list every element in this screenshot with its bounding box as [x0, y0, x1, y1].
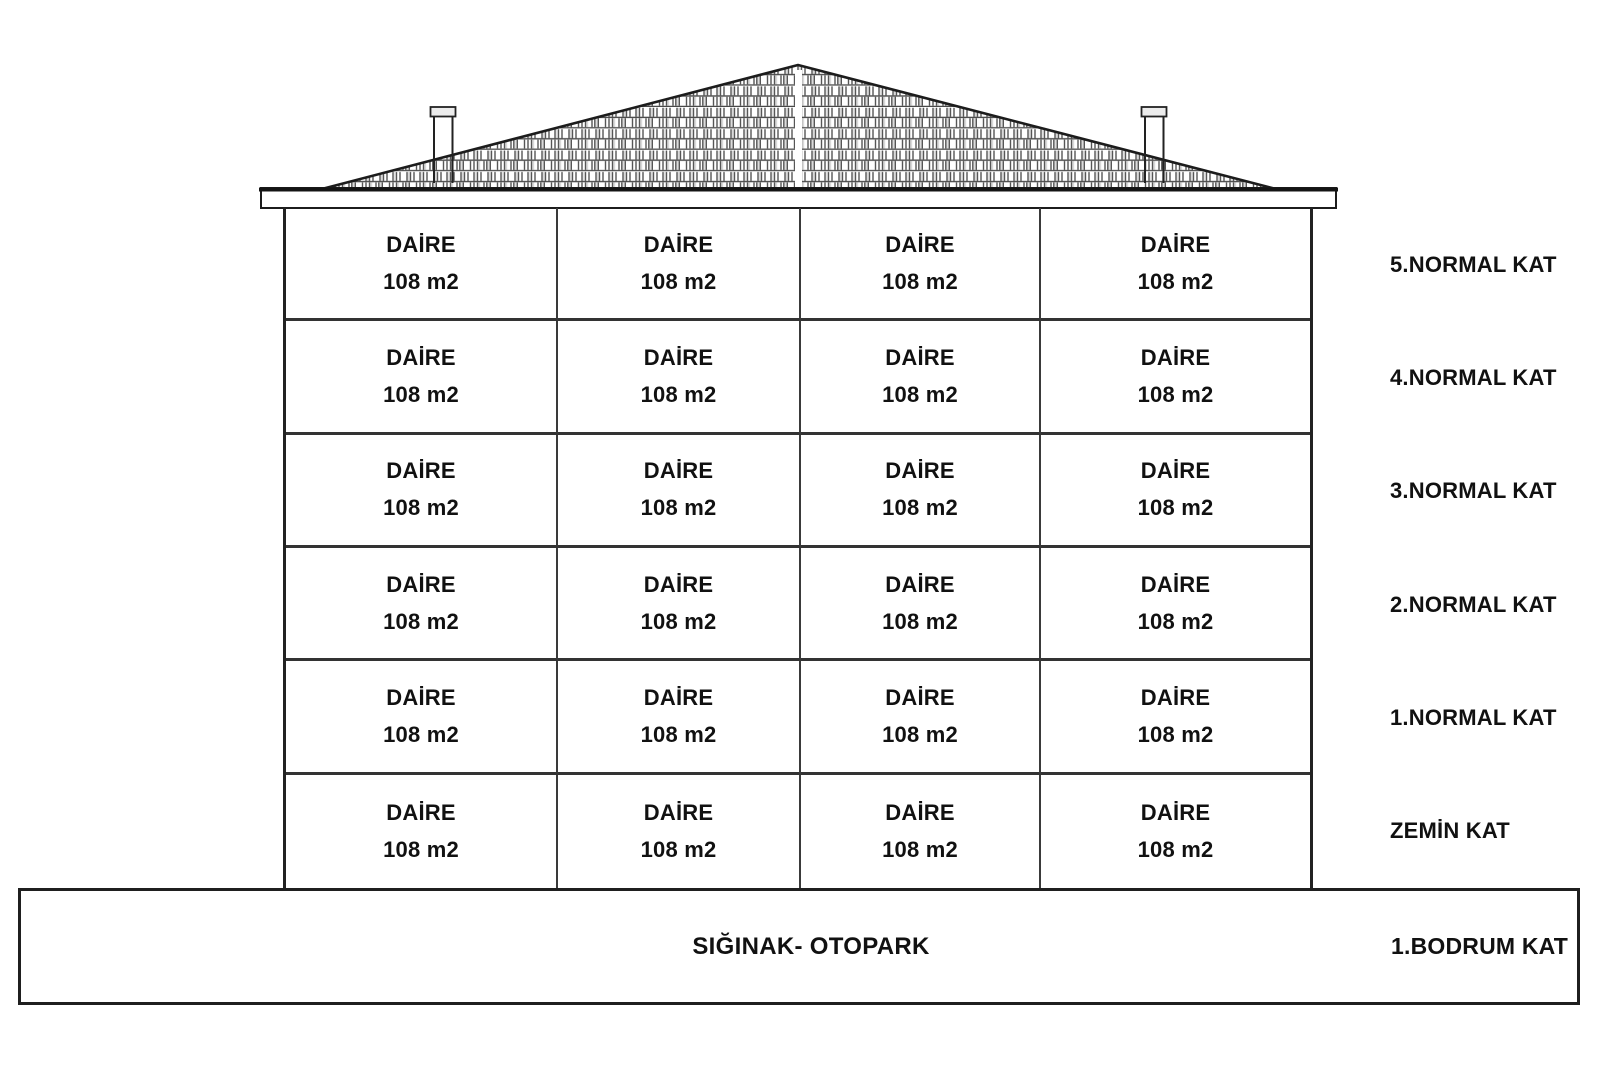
floor-label: 3.NORMAL KAT: [1390, 435, 1557, 548]
apartment-cell: DAİRE108 m2: [1041, 775, 1310, 888]
unit-area: 108 m2: [1138, 724, 1214, 746]
apartment-cell: DAİRE108 m2: [801, 208, 1041, 321]
apartment-cell: DAİRE108 m2: [1041, 208, 1310, 321]
eave-band: [259, 188, 1338, 208]
unit-name: DAİRE: [1141, 687, 1210, 709]
unit-area: 108 m2: [641, 724, 717, 746]
apartment-cell: DAİRE108 m2: [286, 208, 558, 321]
apartment-cell: DAİRE108 m2: [801, 775, 1041, 888]
floor-label: ZEMİN KAT: [1390, 775, 1510, 888]
unit-name: DAİRE: [1141, 802, 1210, 824]
unit-area: 108 m2: [882, 271, 958, 293]
apartment-cell: DAİRE108 m2: [801, 548, 1041, 661]
roof-ridge-gap: [795, 70, 802, 188]
apartment-cell: DAİRE108 m2: [1041, 548, 1310, 661]
unit-area: 108 m2: [641, 839, 717, 861]
basement-floor-label: 1.BODRUM KAT: [1391, 891, 1568, 1002]
floor-label: 5.NORMAL KAT: [1390, 208, 1557, 321]
unit-name: DAİRE: [644, 234, 713, 256]
unit-name: DAİRE: [885, 574, 954, 596]
unit-name: DAİRE: [644, 460, 713, 482]
apartment-cell: DAİRE108 m2: [1041, 661, 1310, 774]
unit-name: DAİRE: [885, 802, 954, 824]
unit-name: DAİRE: [644, 687, 713, 709]
unit-area: 108 m2: [383, 724, 459, 746]
unit-name: DAİRE: [1141, 234, 1210, 256]
unit-name: DAİRE: [1141, 347, 1210, 369]
apartment-cell: DAİRE108 m2: [801, 661, 1041, 774]
unit-area: 108 m2: [882, 384, 958, 406]
building-section-diagram: DAİRE108 m2DAİRE108 m2DAİRE108 m2DAİRE10…: [0, 0, 1600, 1071]
unit-name: DAİRE: [386, 460, 455, 482]
unit-name: DAİRE: [386, 574, 455, 596]
unit-name: DAİRE: [885, 347, 954, 369]
unit-area: 108 m2: [882, 497, 958, 519]
unit-area: 108 m2: [1138, 839, 1214, 861]
apartment-cell: DAİRE108 m2: [1041, 321, 1310, 434]
unit-name: DAİRE: [386, 347, 455, 369]
unit-area: 108 m2: [1138, 271, 1214, 293]
unit-name: DAİRE: [386, 234, 455, 256]
apartment-cell: DAİRE108 m2: [286, 775, 558, 888]
unit-name: DAİRE: [644, 802, 713, 824]
unit-name: DAİRE: [386, 802, 455, 824]
apartment-cell: DAİRE108 m2: [286, 321, 558, 434]
apartment-cell: DAİRE108 m2: [1041, 435, 1310, 548]
unit-area: 108 m2: [383, 271, 459, 293]
apartment-cell: DAİRE108 m2: [801, 435, 1041, 548]
unit-area: 108 m2: [383, 839, 459, 861]
roof: [0, 0, 1600, 220]
apartment-grid: DAİRE108 m2DAİRE108 m2DAİRE108 m2DAİRE10…: [283, 208, 1313, 888]
floor-label: 4.NORMAL KAT: [1390, 321, 1557, 434]
unit-area: 108 m2: [383, 611, 459, 633]
apartment-cell: DAİRE108 m2: [801, 321, 1041, 434]
unit-area: 108 m2: [383, 384, 459, 406]
unit-area: 108 m2: [1138, 384, 1214, 406]
apartment-cell: DAİRE108 m2: [286, 435, 558, 548]
apartment-cell: DAİRE108 m2: [558, 321, 801, 434]
floor-label: 2.NORMAL KAT: [1390, 548, 1557, 661]
unit-area: 108 m2: [882, 724, 958, 746]
apartment-cell: DAİRE108 m2: [558, 208, 801, 321]
unit-name: DAİRE: [386, 687, 455, 709]
basement: SIĞINAK- OTOPARK 1.BODRUM KAT: [18, 888, 1580, 1005]
unit-name: DAİRE: [644, 574, 713, 596]
unit-area: 108 m2: [1138, 611, 1214, 633]
unit-name: DAİRE: [885, 687, 954, 709]
unit-area: 108 m2: [1138, 497, 1214, 519]
unit-name: DAİRE: [885, 460, 954, 482]
unit-area: 108 m2: [641, 497, 717, 519]
apartment-cell: DAİRE108 m2: [286, 661, 558, 774]
unit-name: DAİRE: [1141, 574, 1210, 596]
unit-name: DAİRE: [1141, 460, 1210, 482]
unit-area: 108 m2: [641, 384, 717, 406]
floor-label: 1.NORMAL KAT: [1390, 661, 1557, 774]
apartment-cell: DAİRE108 m2: [558, 548, 801, 661]
apartment-cell: DAİRE108 m2: [558, 775, 801, 888]
unit-area: 108 m2: [882, 839, 958, 861]
apartment-cell: DAİRE108 m2: [558, 661, 801, 774]
unit-name: DAİRE: [644, 347, 713, 369]
unit-area: 108 m2: [882, 611, 958, 633]
apartment-cell: DAİRE108 m2: [286, 548, 558, 661]
unit-name: DAİRE: [885, 234, 954, 256]
unit-area: 108 m2: [641, 611, 717, 633]
apartment-cell: DAİRE108 m2: [558, 435, 801, 548]
unit-area: 108 m2: [641, 271, 717, 293]
shelter-parking-label: SIĞINAK- OTOPARK: [692, 933, 929, 961]
unit-area: 108 m2: [383, 497, 459, 519]
